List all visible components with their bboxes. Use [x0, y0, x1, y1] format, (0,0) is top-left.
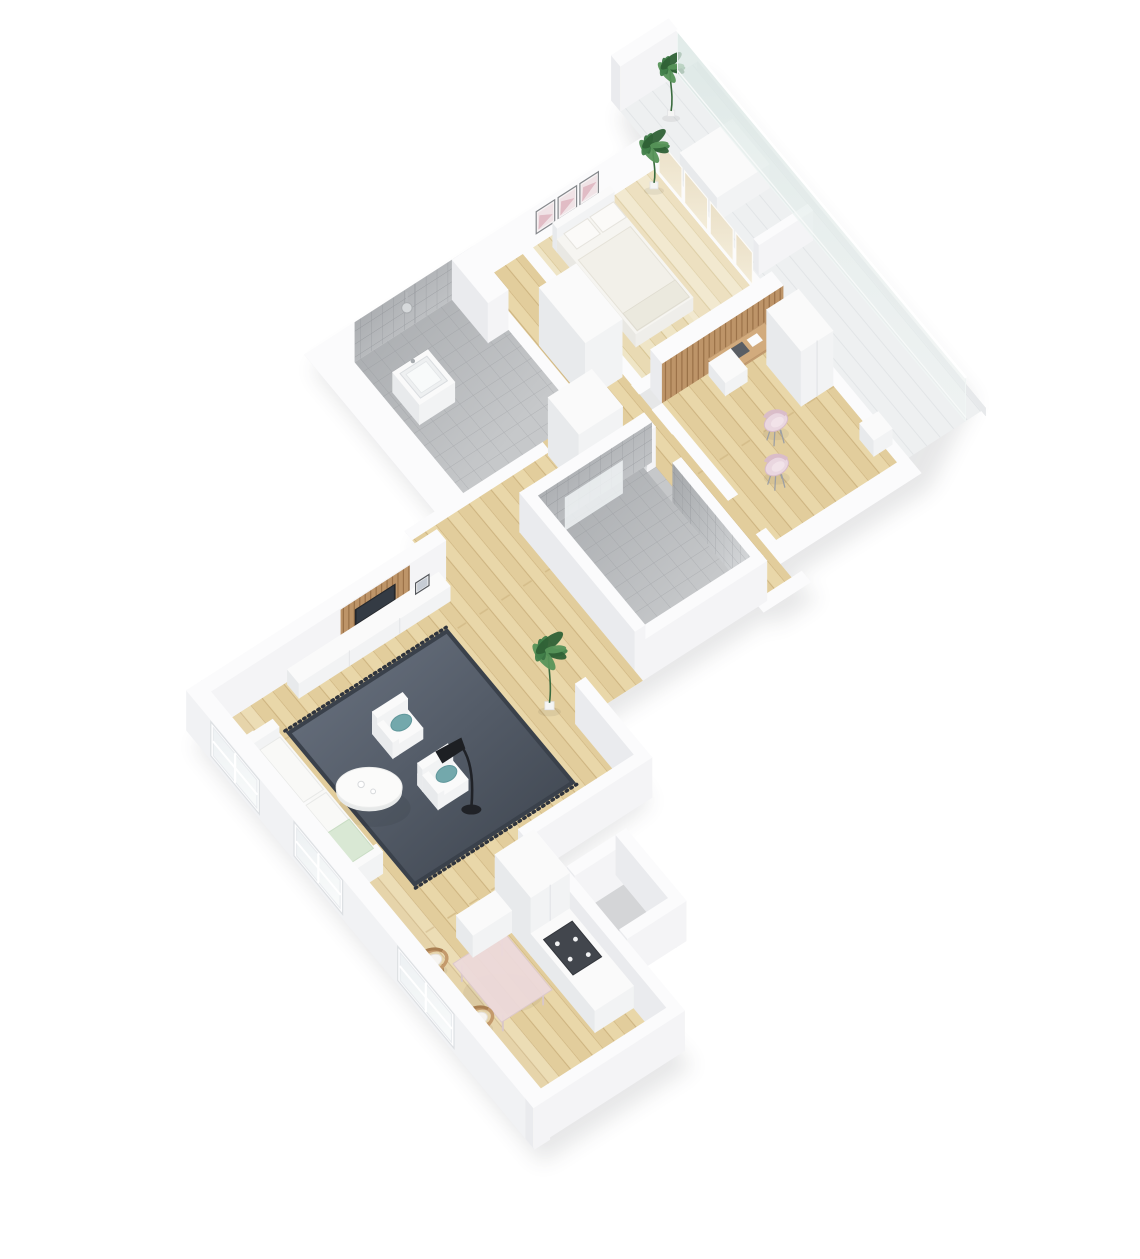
apartment-3d-floorplan	[0, 0, 1140, 1259]
floorplan-svg	[0, 0, 1140, 1259]
